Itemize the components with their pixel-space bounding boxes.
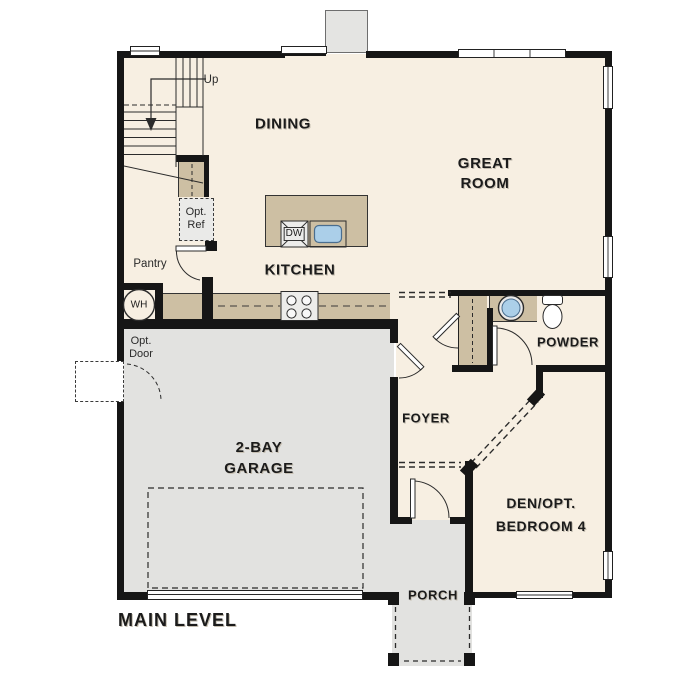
den-opening-block-upper [527, 388, 545, 407]
powder-door [493, 326, 533, 365]
opening-foyer-entry [399, 463, 461, 468]
room-label-great-room: GREAT ROOM [458, 154, 512, 194]
room-label-powder: POWDER [537, 335, 599, 350]
room-label-kitchen: KITCHEN [265, 262, 336, 279]
plan-title: MAIN LEVEL [118, 610, 237, 631]
dishwasher-label: DW [284, 227, 305, 241]
great-room-line2: ROOM [458, 174, 512, 194]
front-door [411, 479, 450, 518]
water-heater-label: WH [131, 300, 148, 311]
garage-line1: 2-BAY [224, 437, 293, 458]
optional-refrigerator-label: Opt. Ref [186, 206, 207, 232]
room-label-porch: PORCH [408, 588, 458, 603]
room-label-dining: DINING [255, 116, 311, 133]
opt-ref-line2: Ref [186, 219, 207, 232]
porch-dashed-edges [396, 607, 470, 661]
optional-door-swing [127, 364, 161, 401]
den-opening-block-lower [460, 459, 478, 478]
opt-door-line2: Door [129, 348, 153, 361]
powder-sink-icon [499, 296, 524, 321]
den-line2: BEDROOM 4 [496, 515, 586, 538]
stove-icon [281, 292, 318, 321]
optional-door-label: Opt. Door [129, 335, 153, 361]
opt-ref-line1: Opt. [186, 206, 207, 219]
room-label-garage: 2-BAY GARAGE [224, 437, 293, 479]
opening-den-diagonal [471, 397, 538, 468]
coat-closet-door [433, 313, 460, 348]
den-line1: DEN/OPT. [496, 492, 586, 515]
room-label-foyer: FOYER [402, 411, 450, 426]
pantry-label: Pantry [133, 258, 166, 270]
stairs-up-label: Up [204, 74, 219, 86]
garage-bay-outline [148, 488, 363, 588]
floor-plan: DINING GREAT ROOM KITCHEN FOYER POWDER D… [0, 0, 687, 687]
pantry-door [176, 246, 206, 280]
room-label-den: DEN/OPT. BEDROOM 4 [496, 492, 586, 538]
great-room-line1: GREAT [458, 154, 512, 174]
garage-entry-door [397, 343, 424, 378]
toilet-icon [543, 296, 563, 329]
staircase [124, 58, 203, 183]
kitchen-sink-icon [310, 221, 346, 247]
garage-line2: GARAGE [224, 458, 293, 479]
opt-door-line1: Opt. [129, 335, 153, 348]
opening-foyer-greatroom [399, 293, 451, 298]
